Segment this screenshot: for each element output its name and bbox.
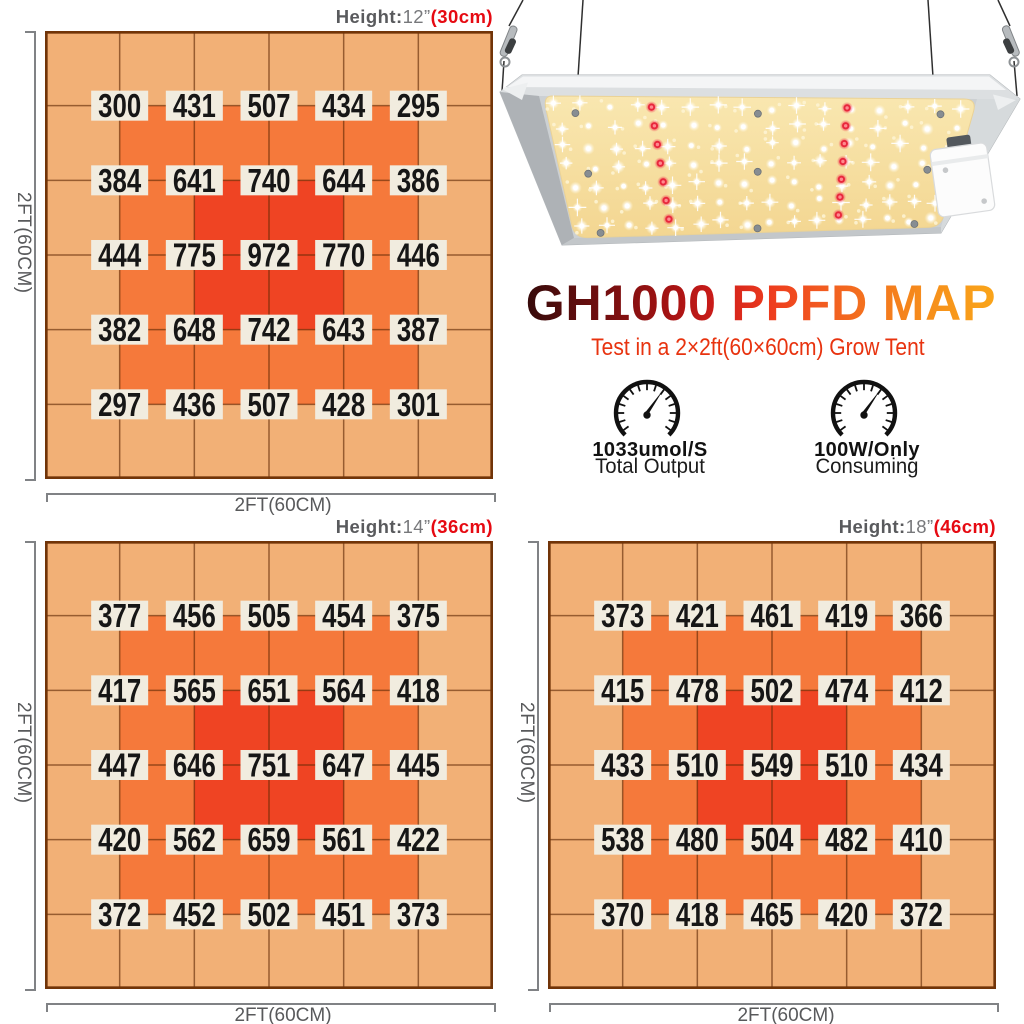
svg-text:446: 446: [397, 237, 440, 274]
svg-text:386: 386: [397, 162, 440, 199]
svg-text:420: 420: [825, 896, 868, 933]
svg-text:421: 421: [676, 597, 719, 634]
svg-text:770: 770: [322, 237, 365, 274]
svg-text:434: 434: [900, 747, 944, 784]
svg-text:451: 451: [322, 896, 365, 933]
svg-text:428: 428: [322, 386, 365, 423]
svg-text:445: 445: [397, 747, 440, 784]
svg-text:436: 436: [173, 386, 216, 423]
svg-text:372: 372: [98, 896, 141, 933]
svg-text:434: 434: [322, 87, 366, 124]
svg-text:456: 456: [173, 597, 216, 634]
svg-text:422: 422: [397, 821, 440, 858]
svg-text:412: 412: [900, 672, 943, 709]
svg-text:502: 502: [248, 896, 291, 933]
svg-text:478: 478: [676, 672, 719, 709]
svg-text:474: 474: [825, 672, 869, 709]
svg-text:561: 561: [322, 821, 365, 858]
svg-text:418: 418: [676, 896, 719, 933]
svg-text:454: 454: [322, 597, 366, 634]
svg-text:444: 444: [98, 237, 142, 274]
svg-text:972: 972: [248, 237, 291, 274]
svg-text:643: 643: [322, 311, 365, 348]
svg-text:372: 372: [900, 896, 943, 933]
svg-text:452: 452: [173, 896, 216, 933]
svg-text:433: 433: [601, 747, 644, 784]
svg-text:564: 564: [322, 672, 366, 709]
svg-text:384: 384: [98, 162, 142, 199]
svg-text:659: 659: [248, 821, 291, 858]
svg-text:648: 648: [173, 311, 216, 348]
svg-text:419: 419: [825, 597, 868, 634]
svg-text:417: 417: [98, 672, 141, 709]
svg-text:507: 507: [248, 386, 291, 423]
svg-text:465: 465: [751, 896, 794, 933]
svg-text:646: 646: [173, 747, 216, 784]
svg-text:382: 382: [98, 311, 141, 348]
svg-text:410: 410: [900, 821, 943, 858]
svg-text:538: 538: [601, 821, 644, 858]
svg-text:297: 297: [98, 386, 141, 423]
svg-text:373: 373: [397, 896, 440, 933]
svg-text:300: 300: [98, 87, 141, 124]
svg-text:502: 502: [751, 672, 794, 709]
svg-text:447: 447: [98, 747, 141, 784]
svg-text:420: 420: [98, 821, 141, 858]
svg-text:505: 505: [248, 597, 291, 634]
svg-text:375: 375: [397, 597, 440, 634]
svg-text:647: 647: [322, 747, 365, 784]
svg-text:507: 507: [248, 87, 291, 124]
svg-text:295: 295: [397, 87, 440, 124]
svg-text:751: 751: [248, 747, 291, 784]
svg-text:565: 565: [173, 672, 216, 709]
svg-text:480: 480: [676, 821, 719, 858]
svg-text:549: 549: [751, 747, 794, 784]
svg-text:641: 641: [173, 162, 216, 199]
svg-text:510: 510: [676, 747, 719, 784]
svg-text:431: 431: [173, 87, 216, 124]
svg-text:775: 775: [173, 237, 216, 274]
svg-text:387: 387: [397, 311, 440, 348]
svg-text:373: 373: [601, 597, 644, 634]
svg-text:377: 377: [98, 597, 141, 634]
svg-text:504: 504: [751, 821, 795, 858]
svg-text:742: 742: [248, 311, 291, 348]
svg-text:461: 461: [751, 597, 794, 634]
svg-text:510: 510: [825, 747, 868, 784]
svg-text:482: 482: [825, 821, 868, 858]
svg-text:644: 644: [322, 162, 366, 199]
svg-text:562: 562: [173, 821, 216, 858]
svg-text:418: 418: [397, 672, 440, 709]
svg-text:366: 366: [900, 597, 943, 634]
svg-text:370: 370: [601, 896, 644, 933]
svg-text:301: 301: [397, 386, 440, 423]
svg-text:740: 740: [248, 162, 291, 199]
svg-text:651: 651: [248, 672, 291, 709]
svg-text:415: 415: [601, 672, 644, 709]
